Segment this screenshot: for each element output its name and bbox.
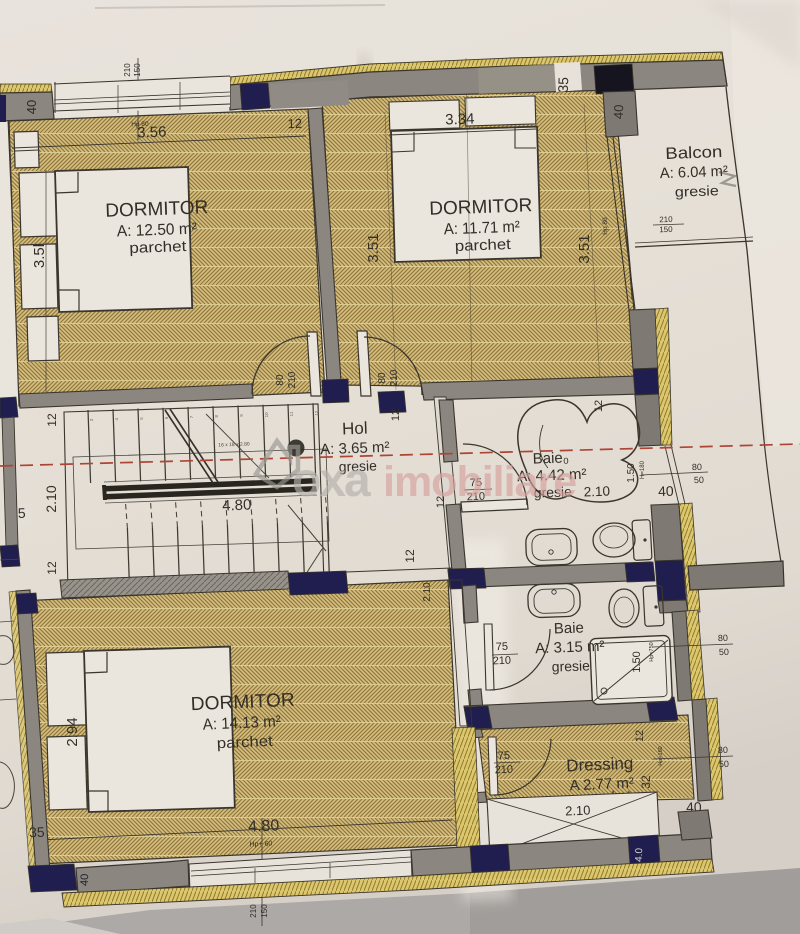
svg-text:150: 150 [659,225,673,234]
svg-text:40: 40 [611,104,626,119]
svg-text:210: 210 [287,371,298,388]
svg-text:gresie: gresie [551,657,590,674]
svg-text:2.94: 2.94 [64,717,81,746]
svg-text:50: 50 [719,759,729,769]
svg-text:3.51: 3.51 [576,234,593,263]
svg-text:80: 80 [275,374,286,386]
svg-text:2.10: 2.10 [422,582,433,602]
svg-text:35: 35 [555,77,572,93]
svg-text:Balcon: Balcon [665,143,723,163]
svg-text:80: 80 [692,462,702,472]
svg-text:4.0: 4.0 [634,847,645,862]
svg-text:A: 6.04 m²: A: 6.04 m² [660,163,729,182]
svg-text:parchet: parchet [129,238,187,257]
svg-text:3.51: 3.51 [365,233,382,262]
svg-text:12: 12 [634,730,646,742]
svg-text:Hol: Hol [342,419,368,439]
svg-text:2.10: 2.10 [583,484,610,500]
svg-text:35: 35 [29,824,45,841]
svg-text:Hp 80: Hp 80 [131,121,149,129]
svg-text:210: 210 [389,369,400,386]
svg-text:50: 50 [719,647,729,657]
svg-text:imobiliare: imobiliare [383,458,576,506]
svg-text:gresie: gresie [675,182,720,200]
svg-text:A: 14.13 m²: A: 14.13 m² [202,713,281,733]
svg-text:H=180: H=180 [640,460,646,479]
svg-text:210: 210 [493,655,512,668]
svg-text:1.50: 1.50 [631,651,643,672]
svg-text:Dressing: Dressing [566,754,634,776]
svg-text:4.80: 4.80 [222,496,252,514]
svg-text:oxa: oxa [292,454,371,507]
svg-text:12: 12 [314,410,319,416]
svg-text:Hp 80: Hp 80 [602,217,609,235]
svg-text:2.10: 2.10 [43,485,59,512]
svg-text:80: 80 [377,372,388,384]
svg-text:12: 12 [390,409,402,421]
svg-text:210: 210 [659,215,673,224]
svg-text:210: 210 [495,764,514,777]
svg-text:150: 150 [260,904,269,918]
svg-text:12: 12 [287,116,302,131]
svg-text:40: 40 [79,874,91,887]
svg-text:32: 32 [639,775,653,789]
svg-text:75: 75 [498,750,511,762]
svg-text:2.10: 2.10 [565,802,591,818]
svg-text:12: 12 [45,561,59,575]
svg-text:11: 11 [289,411,294,416]
svg-text:12: 12 [403,549,417,563]
svg-text:40: 40 [658,483,674,500]
svg-text:DORMITOR: DORMITOR [429,195,533,220]
svg-text:4.80: 4.80 [248,817,280,835]
svg-text:210: 210 [249,904,258,918]
svg-text:3.34: 3.34 [445,110,475,128]
svg-text:A: 3.15 m²: A: 3.15 m² [535,638,605,657]
svg-text:150: 150 [133,63,142,77]
svg-text:75: 75 [496,641,509,653]
svg-text:Baie: Baie [554,619,585,637]
svg-text:12: 12 [45,413,59,427]
svg-text:80: 80 [718,633,728,643]
svg-text:parchet: parchet [216,733,274,752]
svg-text:16 x 18 x 2.80: 16 x 18 x 2.80 [218,441,250,448]
svg-text:1.50: 1.50 [626,463,637,483]
svg-text:10: 10 [264,412,269,418]
svg-text:40: 40 [24,100,39,114]
svg-text:Hp+ 60: Hp+ 60 [249,841,272,849]
svg-text:parchet: parchet [455,236,512,255]
svg-text:3.5l: 3.5l [31,244,48,268]
svg-text:Hp=750: Hp=750 [649,642,655,661]
svg-text:Hp=160: Hp=160 [658,746,664,765]
svg-text:12: 12 [593,400,605,412]
svg-text:DORMITOR: DORMITOR [105,197,209,222]
svg-text:80: 80 [718,745,728,755]
svg-text:210: 210 [123,63,132,77]
svg-text:50: 50 [694,475,704,485]
